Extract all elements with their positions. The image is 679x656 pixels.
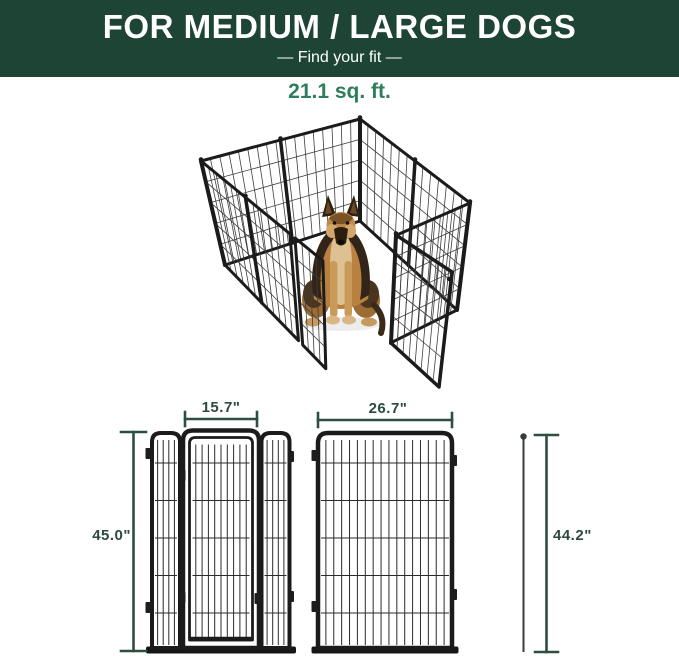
panel-width-dimension: 26.7" xyxy=(318,400,452,427)
door-height-dimension: 45.0" xyxy=(92,432,146,651)
panel-height-label: 44.2" xyxy=(553,527,592,544)
panel-height-dimension: 44.2" xyxy=(535,435,592,652)
area-label: 21.1 sq. ft. xyxy=(0,80,679,104)
regular-panel-figure xyxy=(312,433,459,654)
header-banner: FOR MEDIUM / LARGE DOGS — Find your fit … xyxy=(0,0,679,77)
dog-tail xyxy=(374,305,382,333)
dog-nose xyxy=(338,240,344,245)
banner-subtitle: — Find your fit — xyxy=(277,49,401,67)
door-panel-figure xyxy=(146,431,297,654)
ground-stake xyxy=(520,433,526,652)
dimension-diagrams: 45.0" 15.7" 26.7" 44.2" xyxy=(0,395,679,656)
panel-width-label: 26.7" xyxy=(369,400,408,417)
door-width-dimension: 15.7" xyxy=(185,399,257,426)
dog-illustration xyxy=(301,195,382,333)
door-height-label: 45.0" xyxy=(92,527,131,544)
door-width-label: 15.7" xyxy=(202,399,241,416)
dimensions-svg: 45.0" 15.7" 26.7" 44.2" xyxy=(0,395,679,656)
playpen-svg xyxy=(150,103,530,403)
playpen-illustration xyxy=(150,103,530,403)
banner-title: FOR MEDIUM / LARGE DOGS xyxy=(103,10,577,45)
